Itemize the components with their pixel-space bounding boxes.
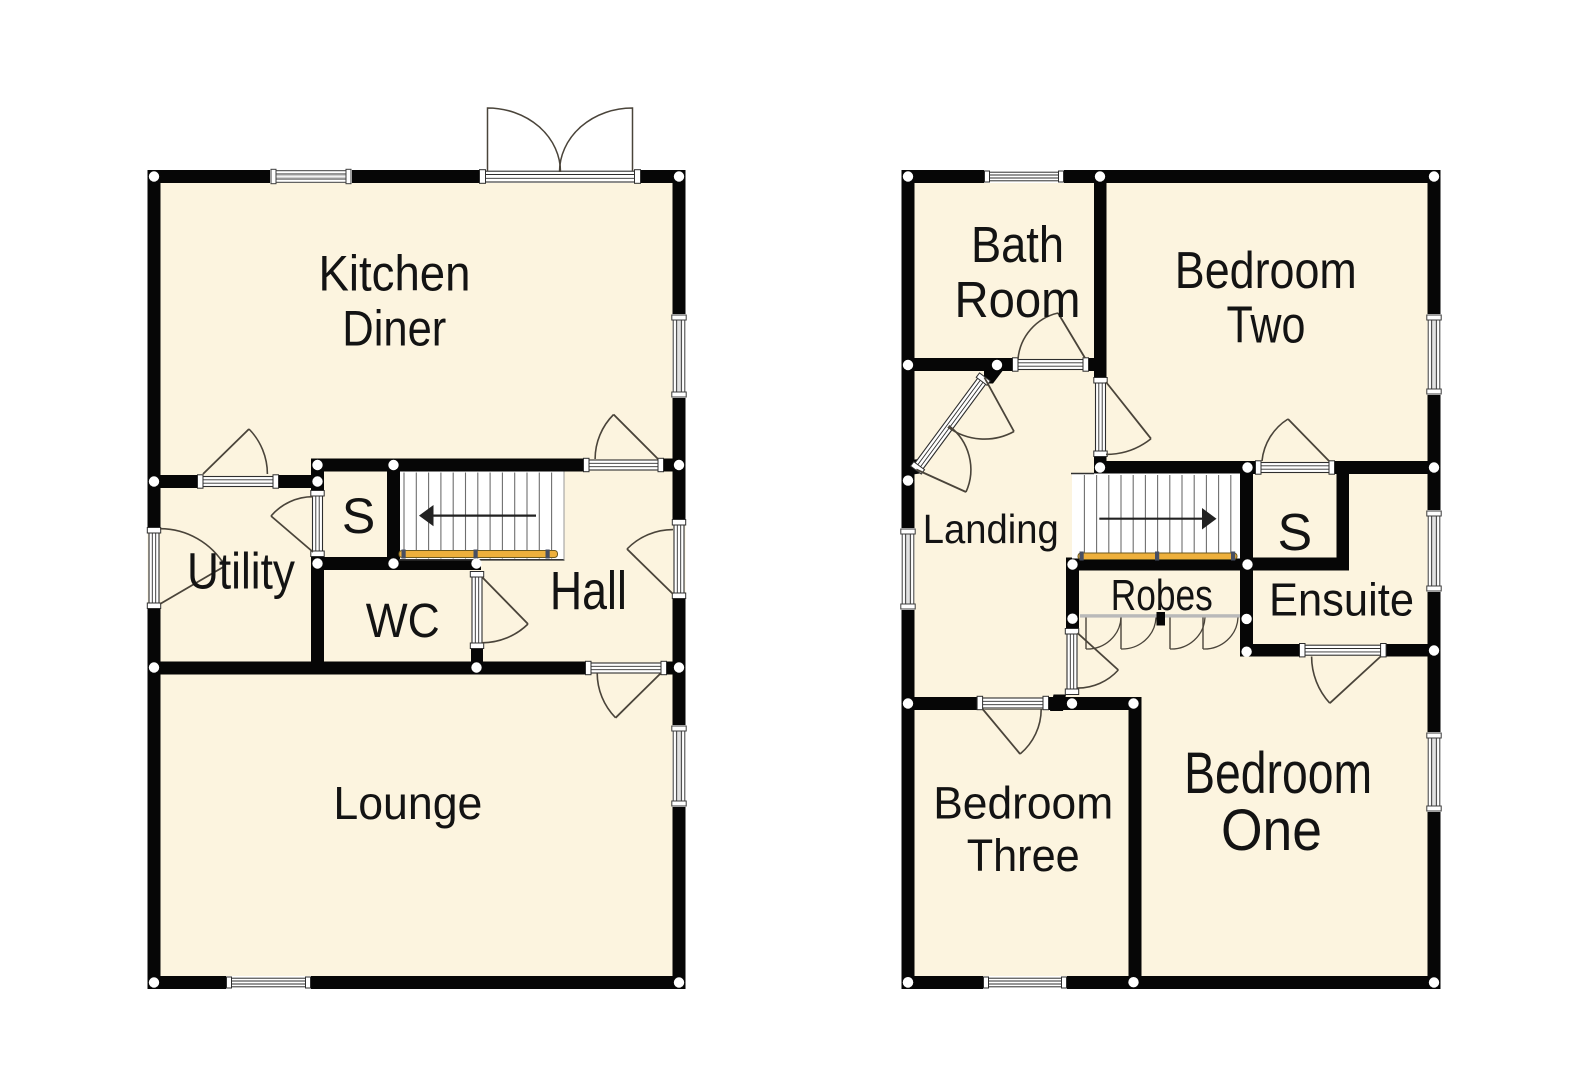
svg-text:S: S [342,488,375,544]
svg-text:Room: Room [955,271,1081,328]
svg-text:Three: Three [967,830,1080,881]
svg-text:Bath: Bath [971,216,1064,273]
svg-text:Kitchen: Kitchen [319,245,471,301]
svg-text:One: One [1221,798,1322,863]
svg-text:WC: WC [366,595,440,648]
svg-text:S: S [1278,504,1313,562]
svg-text:Robes: Robes [1111,571,1213,620]
svg-text:Bedroom: Bedroom [1175,242,1357,300]
svg-text:Hall: Hall [550,561,627,621]
svg-text:Bedroom: Bedroom [1184,741,1372,806]
svg-text:Utility: Utility [187,543,295,600]
svg-text:Two: Two [1227,296,1306,354]
svg-text:Ensuite: Ensuite [1269,574,1414,626]
svg-text:Bedroom: Bedroom [933,778,1113,829]
svg-text:Diner: Diner [342,300,446,356]
svg-text:Lounge: Lounge [333,777,482,829]
svg-text:Landing: Landing [923,506,1059,552]
